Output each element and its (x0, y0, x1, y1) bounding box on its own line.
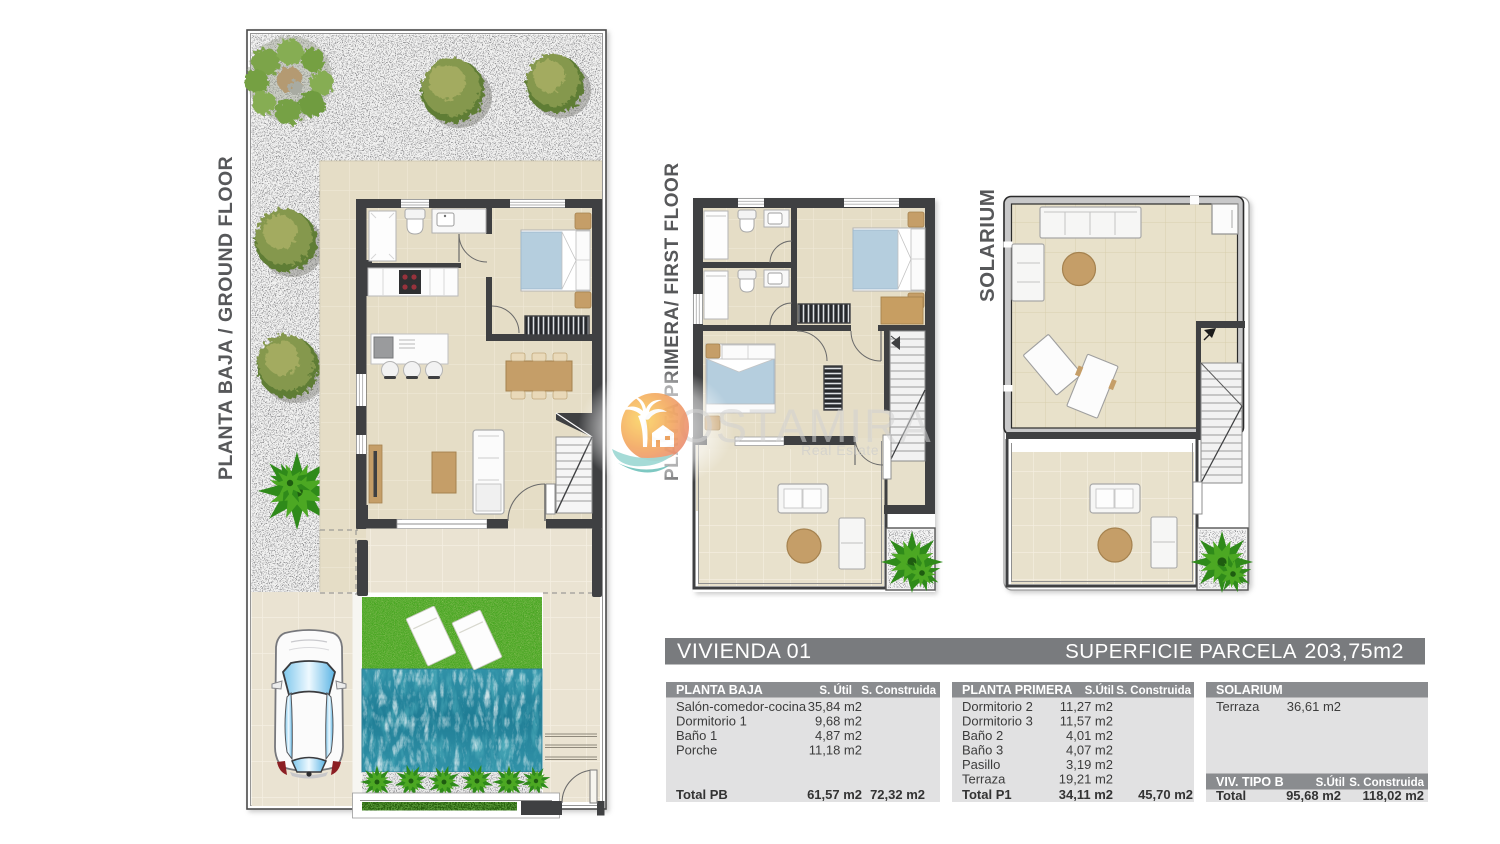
svg-text:VIV. TIPO B: VIV. TIPO B (1216, 775, 1284, 789)
svg-text:36,61 m2: 36,61 m2 (1287, 699, 1341, 714)
svg-text:4,01 m2: 4,01 m2 (1066, 728, 1113, 743)
svg-text:203,75m2: 203,75m2 (1304, 639, 1404, 663)
svg-text:S. Construida: S. Construida (861, 685, 936, 697)
svg-text:Salón-comedor-cocina: Salón-comedor-cocina (676, 699, 807, 714)
svg-text:3,19 m2: 3,19 m2 (1066, 757, 1113, 772)
svg-text:Total: Total (1216, 788, 1246, 803)
svg-text:PLANTA BAJA: PLANTA BAJA (676, 683, 763, 697)
svg-text:4,07 m2: 4,07 m2 (1066, 743, 1113, 758)
svg-text:Real Estate: Real Estate (801, 442, 879, 458)
svg-text:S. Útil: S. Útil (819, 684, 852, 697)
svg-text:Terraza: Terraza (1216, 699, 1260, 714)
svg-text:95,68 m2: 95,68 m2 (1286, 788, 1341, 803)
svg-text:PLANTA PRIMERA: PLANTA PRIMERA (962, 683, 1072, 697)
svg-text:34,11 m2: 34,11 m2 (1059, 787, 1113, 802)
svg-text:Pasillo: Pasillo (962, 757, 1000, 772)
svg-text:S.Útil: S.Útil (1085, 684, 1114, 697)
svg-text:PLANTA BAJA / GROUND FLOOR: PLANTA BAJA / GROUND FLOOR (215, 156, 237, 480)
svg-text:Dormitorio 3: Dormitorio 3 (962, 714, 1033, 729)
svg-text:SOLARIUM: SOLARIUM (1216, 683, 1283, 697)
svg-text:35,84 m2: 35,84 m2 (808, 699, 862, 714)
svg-text:45,70 m2: 45,70 m2 (1138, 787, 1193, 802)
svg-text:61,57 m2: 61,57 m2 (807, 787, 862, 802)
svg-text:Dormitorio 1: Dormitorio 1 (676, 714, 747, 729)
svg-text:SUPERFICIE PARCELA: SUPERFICIE PARCELA (1065, 640, 1297, 663)
svg-text:SOLARIUM: SOLARIUM (976, 189, 999, 302)
svg-text:Dormitorio 2: Dormitorio 2 (962, 699, 1033, 714)
svg-text:118,02 m2: 118,02 m2 (1363, 788, 1424, 803)
svg-text:9,68 m2: 9,68 m2 (815, 714, 862, 729)
svg-text:72,32 m2: 72,32 m2 (870, 787, 925, 802)
svg-text:11,18 m2: 11,18 m2 (809, 743, 862, 758)
svg-text:19,21 m2: 19,21 m2 (1059, 772, 1113, 787)
svg-text:S. Construida: S. Construida (1116, 685, 1191, 697)
svg-text:11,27 m2: 11,27 m2 (1060, 699, 1113, 714)
svg-text:Baño 2: Baño 2 (962, 728, 1003, 743)
svg-text:Baño 3: Baño 3 (962, 743, 1003, 758)
svg-text:11,57 m2: 11,57 m2 (1060, 714, 1113, 729)
svg-text:VIVIENDA 01: VIVIENDA 01 (677, 639, 812, 663)
svg-text:Porche: Porche (676, 743, 717, 758)
svg-text:Terraza: Terraza (962, 772, 1006, 787)
svg-text:Total PB: Total PB (676, 787, 728, 802)
svg-text:Total P1: Total P1 (962, 787, 1012, 802)
svg-text:4,87 m2: 4,87 m2 (815, 728, 862, 743)
svg-text:Baño 1: Baño 1 (676, 728, 717, 743)
